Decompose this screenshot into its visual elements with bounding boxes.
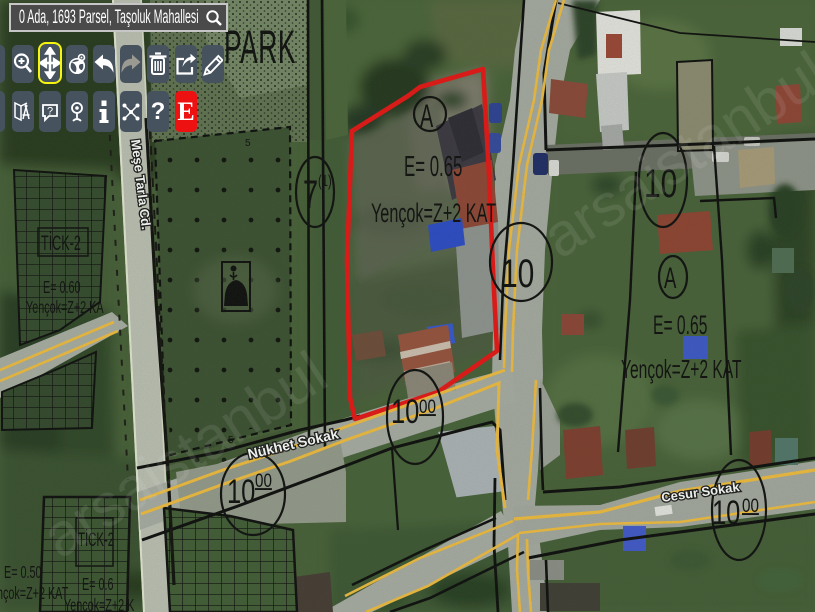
svg-text:?: ? [47,105,53,117]
